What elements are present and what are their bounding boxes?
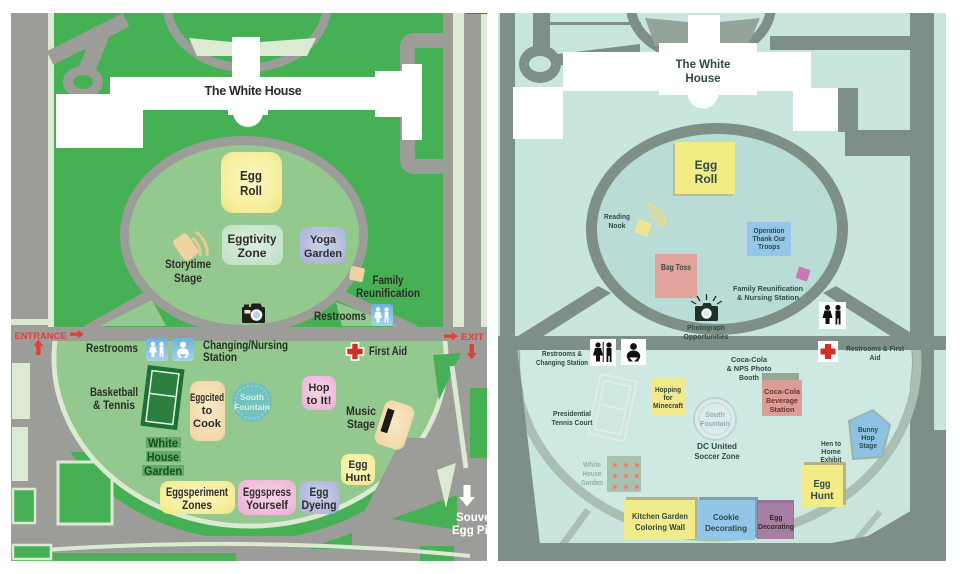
svg-text:ENTRANCE: ENTRANCE (15, 331, 67, 342)
svg-text:House: House (583, 469, 602, 478)
svg-text:Egg: Egg (814, 479, 831, 490)
svg-text:Tennis Court: Tennis Court (552, 418, 593, 427)
svg-text:Eggtivity: Eggtivity (228, 232, 277, 246)
svg-text:Yourself: Yourself (246, 500, 288, 512)
svg-text:White: White (583, 460, 601, 469)
svg-text:Garden: Garden (144, 466, 182, 478)
svg-text:Cook: Cook (193, 418, 222, 430)
svg-text:Eggspress: Eggspress (243, 487, 291, 499)
svg-text:South: South (705, 412, 725, 419)
svg-text:Troops: Troops (758, 244, 780, 251)
svg-text:Nook: Nook (609, 221, 627, 230)
svg-text:Bag Toss: Bag Toss (661, 262, 691, 272)
svg-text:Stage: Stage (347, 419, 375, 431)
svg-text:The White: The White (676, 59, 731, 71)
svg-text:Garden: Garden (581, 478, 603, 487)
svg-text:Soccer Zone: Soccer Zone (695, 451, 740, 461)
svg-text:Eggcited: Eggcited (190, 392, 224, 404)
svg-text:Changing/Nursing: Changing/Nursing (203, 340, 288, 352)
svg-text:Egg: Egg (349, 459, 368, 471)
svg-text:Decorating: Decorating (758, 524, 794, 531)
svg-text:Roll: Roll (695, 172, 718, 186)
svg-text:Hunt: Hunt (811, 491, 835, 502)
svg-text:Restrooms: Restrooms (86, 343, 138, 355)
svg-text:Home: Home (821, 449, 841, 456)
svg-text:Cookie: Cookie (713, 512, 739, 522)
svg-text:to: to (202, 405, 213, 417)
svg-text:Coca-Cola: Coca-Cola (764, 387, 801, 396)
svg-text:Opportunities: Opportunities (684, 332, 729, 341)
svg-text:Restrooms &: Restrooms & (542, 351, 582, 358)
svg-text:for: for (663, 395, 673, 402)
svg-text:Music: Music (346, 406, 377, 418)
svg-text:Basketball: Basketball (90, 387, 138, 399)
svg-text:Egg: Egg (770, 515, 783, 522)
svg-text:Eggsperiment: Eggsperiment (166, 487, 228, 499)
svg-text:Photograph: Photograph (687, 323, 725, 332)
svg-text:Egg: Egg (310, 487, 329, 499)
svg-text:Booth: Booth (739, 373, 759, 382)
svg-text:Station: Station (203, 352, 237, 364)
svg-text:& NPS Photo: & NPS Photo (727, 364, 772, 373)
svg-text:House: House (685, 73, 720, 85)
svg-text:Dyeing: Dyeing (302, 500, 337, 512)
svg-text:Hen to: Hen to (821, 441, 841, 448)
svg-text:First Aid: First Aid (369, 346, 407, 358)
svg-text:Aid: Aid (870, 353, 881, 362)
svg-text:Reunification: Reunification (356, 288, 420, 300)
svg-text:Restrooms: Restrooms (314, 311, 366, 323)
svg-text:Beverage: Beverage (766, 396, 798, 405)
svg-text:Egg: Egg (695, 158, 718, 172)
svg-text:Hopping: Hopping (655, 387, 681, 394)
svg-text:Fountain: Fountain (700, 421, 730, 428)
svg-text:Presidential: Presidential (553, 409, 591, 418)
svg-text:Minecraft: Minecraft (653, 403, 684, 410)
svg-text:EXIT: EXIT (461, 332, 484, 343)
svg-text:Zone: Zone (238, 246, 267, 260)
svg-text:Thank Our: Thank Our (753, 236, 786, 243)
svg-text:White: White (148, 438, 178, 450)
svg-text:Operation: Operation (754, 228, 785, 235)
svg-text:Hop: Hop (861, 435, 875, 442)
svg-text:Stage: Stage (174, 273, 202, 285)
svg-text:& Tennis: & Tennis (93, 400, 135, 412)
svg-text:Fountain: Fountain (234, 402, 270, 412)
svg-text:Coca-Cola: Coca-Cola (731, 355, 768, 364)
svg-text:Reading: Reading (604, 212, 630, 221)
svg-text:South: South (240, 392, 264, 402)
svg-text:Hop: Hop (309, 382, 330, 394)
svg-text:Yoga: Yoga (310, 234, 337, 246)
svg-text:Roll: Roll (240, 184, 262, 198)
svg-text:Egg: Egg (240, 169, 262, 183)
svg-text:Family: Family (373, 275, 405, 287)
svg-text:Coloring Wall: Coloring Wall (635, 522, 685, 532)
svg-text:Station: Station (770, 405, 795, 414)
svg-text:Storytime: Storytime (165, 259, 211, 271)
svg-text:Stage: Stage (859, 443, 877, 450)
svg-text:Decorating: Decorating (705, 523, 747, 533)
svg-text:DC United: DC United (697, 441, 737, 451)
svg-text:Family Reunification: Family Reunification (733, 284, 803, 293)
svg-text:Garden: Garden (304, 248, 342, 260)
svg-text:Restrooms & First: Restrooms & First (846, 344, 904, 353)
svg-text:The White House: The White House (205, 84, 302, 98)
svg-text:Bunny: Bunny (858, 427, 878, 434)
svg-text:Souve: Souve (456, 512, 491, 524)
svg-text:Changing Station: Changing Station (536, 360, 588, 367)
svg-text:Zones: Zones (182, 500, 212, 512)
svg-text:to It!: to It! (307, 395, 332, 407)
svg-text:Kitchen Garden: Kitchen Garden (632, 511, 688, 521)
svg-text:House: House (147, 452, 179, 464)
svg-text:Hunt: Hunt (346, 472, 371, 484)
svg-text:& Nursing Station: & Nursing Station (737, 293, 799, 302)
